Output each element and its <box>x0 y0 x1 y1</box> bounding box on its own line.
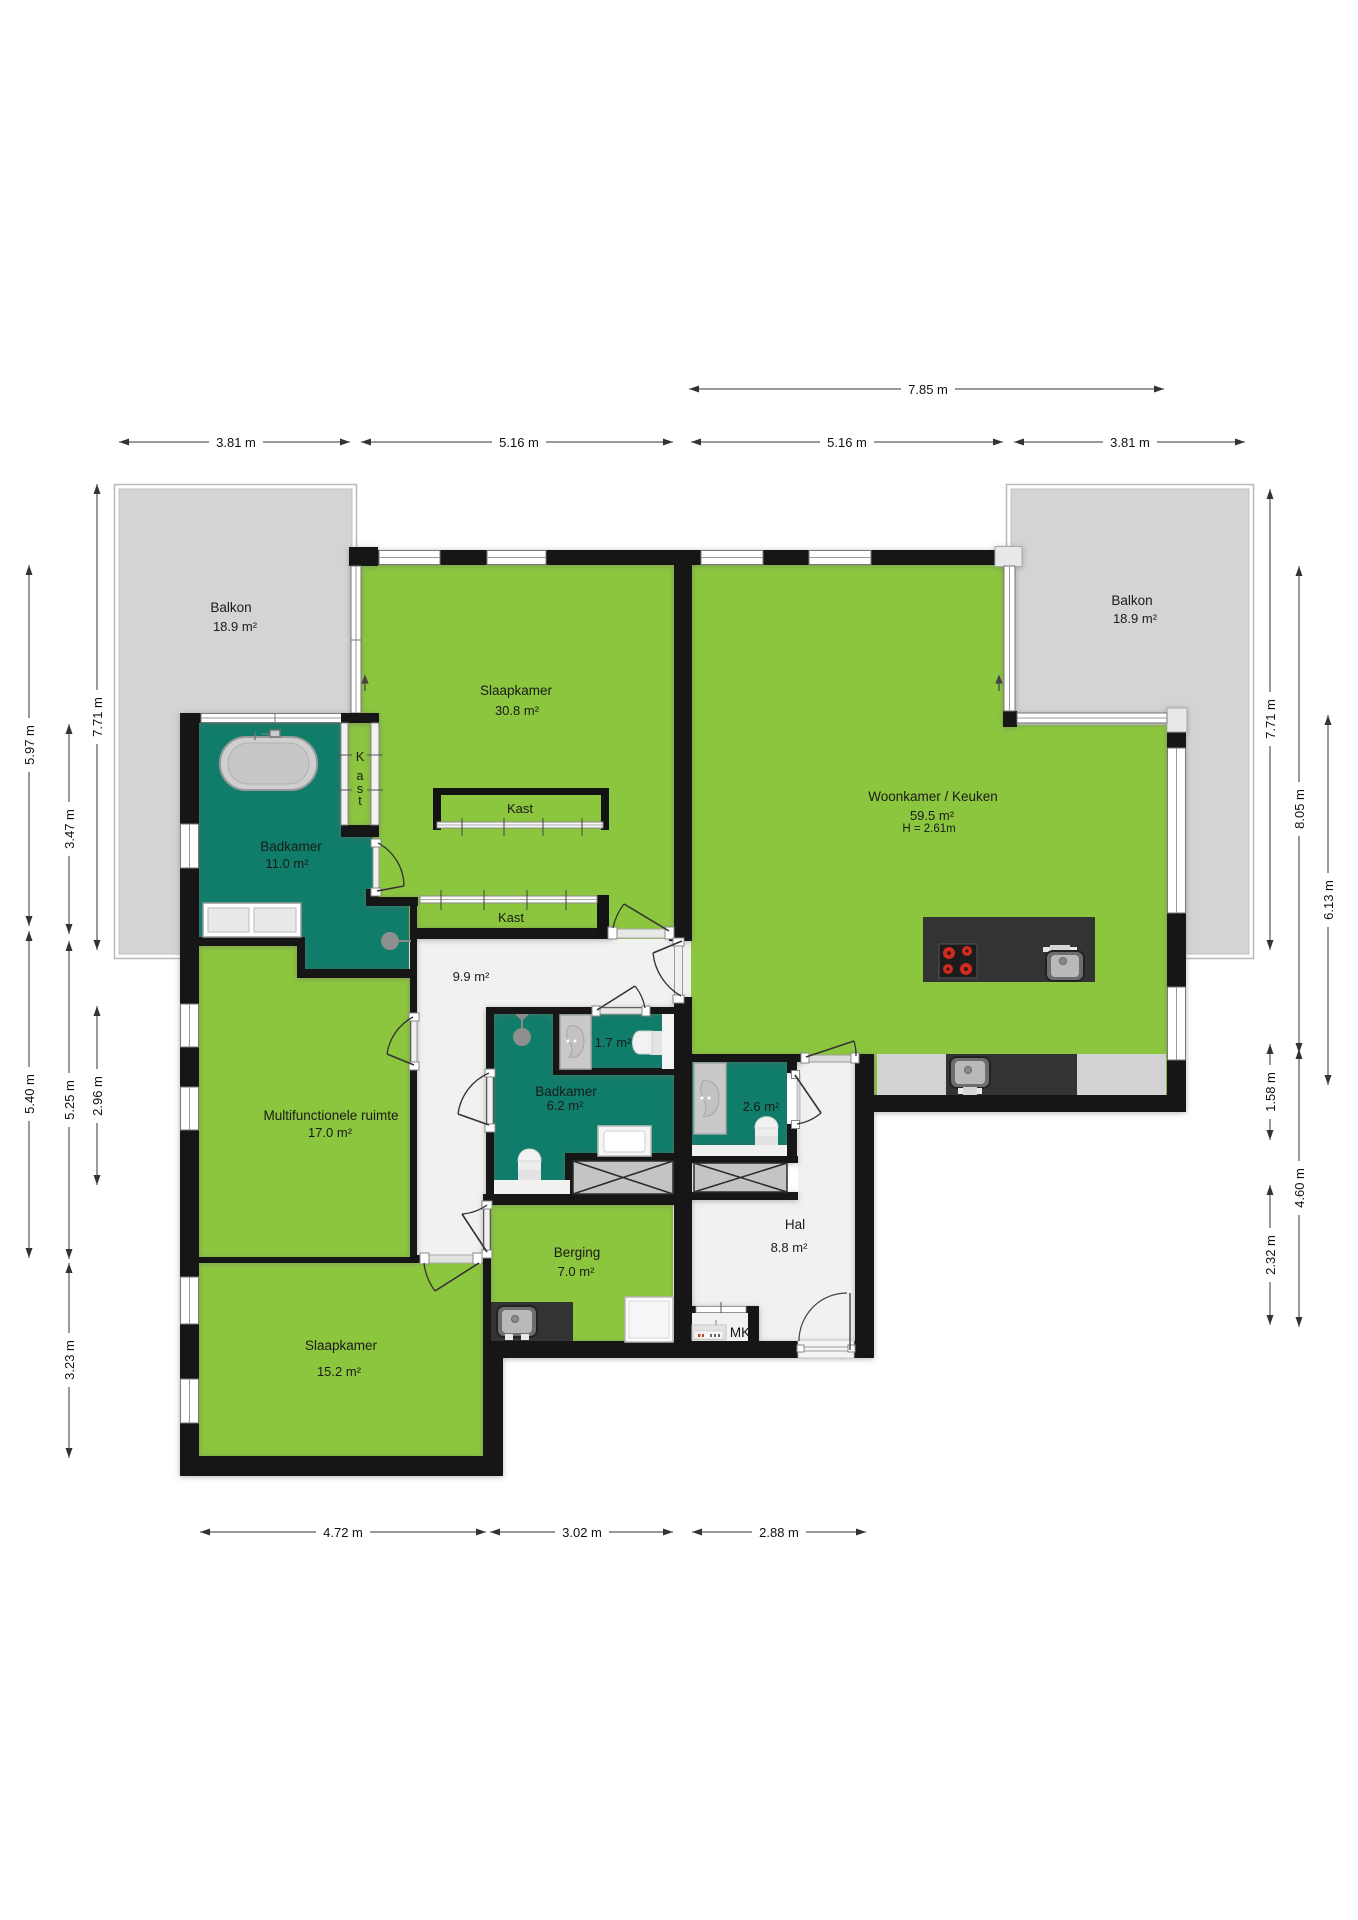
svg-text:Multifunctionele ruimte: Multifunctionele ruimte <box>263 1108 398 1123</box>
svg-text:Balkon: Balkon <box>1111 593 1152 608</box>
svg-text:8.05 m: 8.05 m <box>1292 789 1307 829</box>
svg-text:3.81 m: 3.81 m <box>216 435 256 450</box>
svg-text:17.0 m²: 17.0 m² <box>308 1125 353 1140</box>
svg-text:7.71 m: 7.71 m <box>90 697 105 737</box>
svg-text:Woonkamer / Keuken: Woonkamer / Keuken <box>868 789 998 804</box>
svg-text:Hal: Hal <box>785 1217 805 1232</box>
svg-text:7.85 m: 7.85 m <box>908 382 948 397</box>
svg-text:59.5 m²: 59.5 m² <box>910 808 955 823</box>
svg-text:5.40 m: 5.40 m <box>22 1074 37 1114</box>
svg-text:5.16 m: 5.16 m <box>827 435 867 450</box>
svg-text:MK: MK <box>730 1325 750 1340</box>
svg-text:11.0 m²: 11.0 m² <box>265 856 309 871</box>
svg-text:H = 2.61m: H = 2.61m <box>902 823 955 835</box>
svg-text:2.88 m: 2.88 m <box>759 1525 799 1540</box>
svg-text:2.6 m²: 2.6 m² <box>743 1099 781 1114</box>
svg-text:Balkon: Balkon <box>210 600 251 615</box>
svg-text:3.81 m: 3.81 m <box>1110 435 1150 450</box>
svg-text:4.60 m: 4.60 m <box>1292 1168 1307 1208</box>
svg-text:3.23 m: 3.23 m <box>62 1340 77 1380</box>
svg-text:Kast: Kast <box>507 801 533 816</box>
svg-text:Badkamer: Badkamer <box>260 839 322 854</box>
svg-text:5.16 m: 5.16 m <box>499 435 539 450</box>
svg-text:8.8 m²: 8.8 m² <box>771 1240 809 1255</box>
svg-text:7.71 m: 7.71 m <box>1263 699 1278 739</box>
svg-text:1.7 m²: 1.7 m² <box>595 1035 633 1050</box>
svg-text:Slaapkamer: Slaapkamer <box>305 1338 378 1353</box>
svg-text:Badkamer: Badkamer <box>535 1084 597 1099</box>
svg-text:2.32 m: 2.32 m <box>1263 1235 1278 1275</box>
svg-text:18.9 m²: 18.9 m² <box>213 619 258 634</box>
svg-text:Berging: Berging <box>554 1245 601 1260</box>
svg-text:6.13 m: 6.13 m <box>1321 880 1336 920</box>
svg-text:7.0 m²: 7.0 m² <box>558 1264 596 1279</box>
svg-text:6.2 m²: 6.2 m² <box>547 1098 585 1113</box>
svg-text:5.97 m: 5.97 m <box>22 725 37 765</box>
svg-text:3.47 m: 3.47 m <box>62 809 77 849</box>
svg-text:18.9 m²: 18.9 m² <box>1113 611 1158 626</box>
svg-text:3.02 m: 3.02 m <box>562 1525 602 1540</box>
svg-text:4.72 m: 4.72 m <box>323 1525 363 1540</box>
svg-text:Kast: Kast <box>498 910 524 925</box>
svg-text:2.96 m: 2.96 m <box>90 1076 105 1116</box>
svg-text:1.58 m: 1.58 m <box>1263 1072 1278 1112</box>
svg-text:15.2 m²: 15.2 m² <box>317 1364 362 1379</box>
svg-text:5.25 m: 5.25 m <box>62 1080 77 1120</box>
svg-text:Slaapkamer: Slaapkamer <box>480 683 553 698</box>
svg-text:30.8 m²: 30.8 m² <box>495 703 540 718</box>
svg-text:9.9 m²: 9.9 m² <box>453 969 491 984</box>
